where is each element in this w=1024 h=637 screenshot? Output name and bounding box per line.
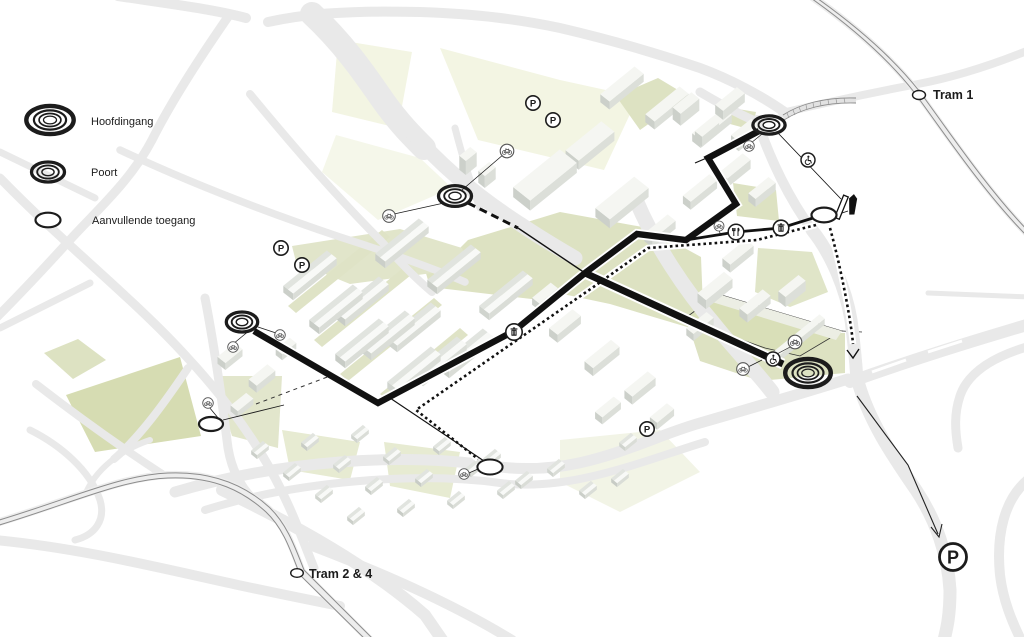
svg-text:P: P [530,98,537,109]
svg-text:Aanvullende toegang: Aanvullende toegang [92,215,195,227]
svg-text:P: P [947,547,959,567]
svg-text:P: P [299,260,306,271]
svg-text:Hoofdingang: Hoofdingang [91,116,153,128]
svg-text:P: P [644,424,651,435]
svg-text:Tram 1: Tram 1 [933,88,973,102]
svg-text:P: P [550,115,557,126]
svg-text:P: P [278,243,285,254]
svg-text:Tram 2 & 4: Tram 2 & 4 [309,567,372,581]
svg-text:Poort: Poort [91,167,117,179]
